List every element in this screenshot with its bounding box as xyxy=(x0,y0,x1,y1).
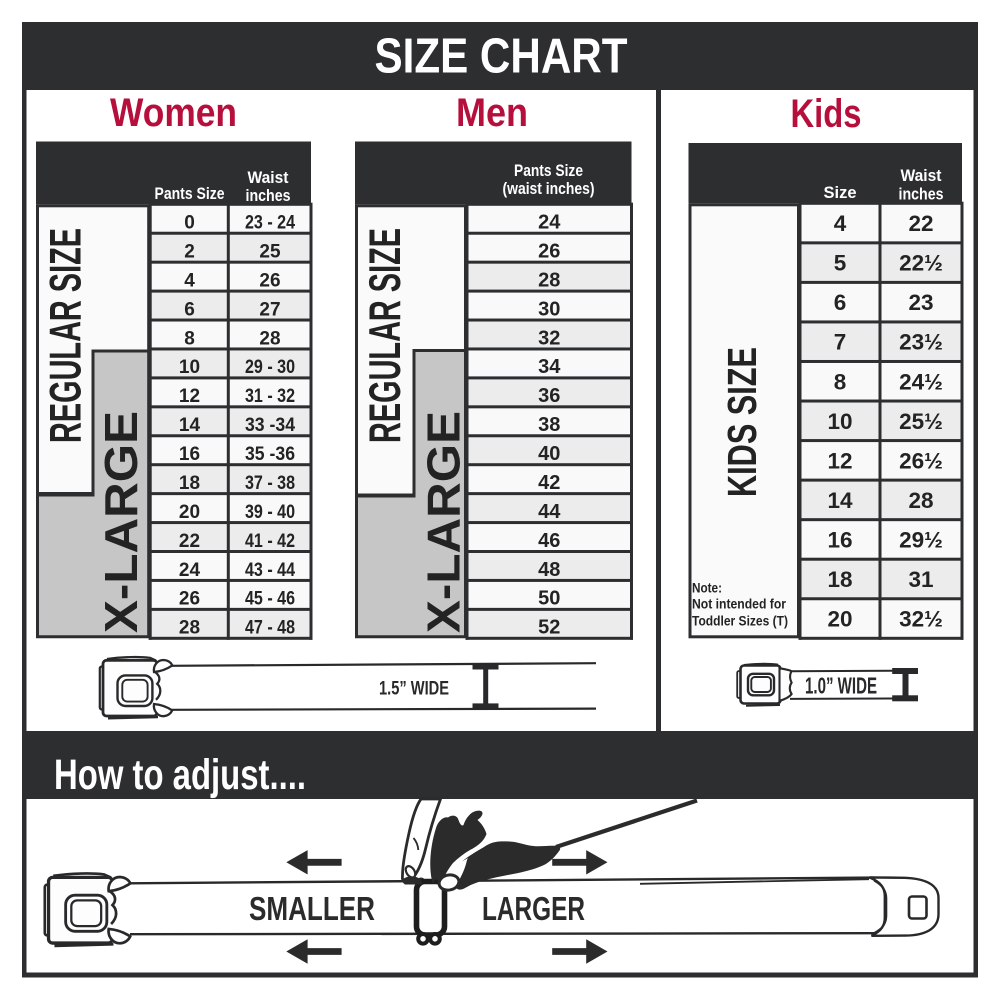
svg-text:18: 18 xyxy=(827,567,852,592)
svg-text:23: 23 xyxy=(908,290,933,315)
svg-text:6: 6 xyxy=(184,299,195,320)
svg-text:50: 50 xyxy=(538,588,560,610)
svg-text:29 - 30: 29 - 30 xyxy=(245,357,295,378)
svg-text:40: 40 xyxy=(538,443,560,465)
svg-text:23½: 23½ xyxy=(899,330,943,355)
svg-text:Women: Women xyxy=(110,91,237,135)
svg-text:48: 48 xyxy=(538,559,560,581)
svg-text:20: 20 xyxy=(827,607,852,632)
svg-text:24½: 24½ xyxy=(899,369,943,394)
svg-text:1.0” WIDE: 1.0” WIDE xyxy=(805,673,877,699)
svg-text:Toddler Sizes (T): Toddler Sizes (T) xyxy=(692,614,788,629)
svg-text:26½: 26½ xyxy=(899,448,943,473)
svg-text:26: 26 xyxy=(538,241,560,263)
svg-text:8: 8 xyxy=(184,328,195,349)
svg-text:52: 52 xyxy=(538,617,560,639)
svg-text:Note:: Note: xyxy=(692,581,722,596)
svg-text:4: 4 xyxy=(834,211,847,236)
svg-text:22: 22 xyxy=(179,531,200,552)
svg-text:12: 12 xyxy=(179,386,200,407)
svg-text:32: 32 xyxy=(538,327,560,349)
svg-text:28: 28 xyxy=(179,618,200,639)
svg-text:38: 38 xyxy=(538,414,560,436)
svg-text:28: 28 xyxy=(259,328,280,349)
svg-text:16: 16 xyxy=(179,444,200,465)
svg-text:KIDS SIZE: KIDS SIZE xyxy=(719,347,765,497)
svg-text:Kids: Kids xyxy=(791,92,862,136)
svg-text:(waist inches): (waist inches) xyxy=(503,180,595,198)
svg-text:39 - 40: 39 - 40 xyxy=(245,502,295,523)
svg-text:inches: inches xyxy=(899,186,944,204)
svg-text:27: 27 xyxy=(259,299,280,320)
svg-text:44: 44 xyxy=(538,501,561,523)
svg-text:37 - 38: 37 - 38 xyxy=(245,473,295,494)
svg-text:Waist: Waist xyxy=(248,169,289,187)
svg-text:inches: inches xyxy=(246,187,291,205)
svg-text:8: 8 xyxy=(834,369,847,394)
svg-text:14: 14 xyxy=(179,415,201,436)
svg-text:46: 46 xyxy=(538,530,560,552)
svg-text:Pants Size: Pants Size xyxy=(155,185,225,203)
svg-text:24: 24 xyxy=(538,212,561,234)
svg-text:0: 0 xyxy=(184,213,195,234)
svg-text:26: 26 xyxy=(259,270,280,291)
svg-text:Pants Size: Pants Size xyxy=(514,162,583,180)
svg-text:REGULAR SIZE: REGULAR SIZE xyxy=(42,228,91,443)
svg-text:SMALLER: SMALLER xyxy=(249,891,375,928)
svg-text:31: 31 xyxy=(908,567,933,592)
svg-text:43 - 44: 43 - 44 xyxy=(245,560,295,581)
svg-text:35 -36: 35 -36 xyxy=(245,444,295,465)
svg-text:28: 28 xyxy=(538,269,560,291)
svg-text:28: 28 xyxy=(908,488,933,513)
svg-text:5: 5 xyxy=(834,251,847,276)
svg-text:6: 6 xyxy=(834,290,847,315)
svg-text:Size: Size xyxy=(824,184,857,202)
svg-text:SIZE CHART: SIZE CHART xyxy=(375,29,628,84)
svg-text:42: 42 xyxy=(538,472,560,494)
svg-text:16: 16 xyxy=(827,527,852,552)
svg-text:26: 26 xyxy=(179,589,200,610)
svg-text:REGULAR SIZE: REGULAR SIZE xyxy=(361,228,410,443)
svg-text:22: 22 xyxy=(908,211,933,236)
svg-text:2: 2 xyxy=(184,242,195,263)
svg-text:34: 34 xyxy=(538,356,561,378)
svg-text:41 - 42: 41 - 42 xyxy=(245,531,295,552)
svg-text:32½: 32½ xyxy=(899,607,943,632)
svg-text:33 -34: 33 -34 xyxy=(245,415,295,436)
svg-text:36: 36 xyxy=(538,385,560,407)
svg-text:10: 10 xyxy=(179,357,200,378)
svg-text:1.5” WIDE: 1.5” WIDE xyxy=(379,679,449,700)
svg-text:12: 12 xyxy=(827,448,852,473)
svg-text:25: 25 xyxy=(259,242,281,263)
svg-text:47 - 48: 47 - 48 xyxy=(245,618,295,639)
svg-text:Waist: Waist xyxy=(901,167,942,185)
svg-text:14: 14 xyxy=(827,488,853,513)
svg-text:X-LARGE: X-LARGE xyxy=(418,411,470,633)
svg-text:Not intended for: Not intended for xyxy=(692,597,787,612)
svg-text:How to adjust....: How to adjust.... xyxy=(54,751,306,799)
svg-text:7: 7 xyxy=(834,330,847,355)
svg-text:X-LARGE: X-LARGE xyxy=(95,411,147,633)
svg-text:22½: 22½ xyxy=(899,251,943,276)
svg-text:24: 24 xyxy=(179,560,201,581)
svg-text:25½: 25½ xyxy=(899,409,943,434)
svg-text:10: 10 xyxy=(827,409,852,434)
svg-text:20: 20 xyxy=(179,502,200,523)
svg-text:29½: 29½ xyxy=(899,527,943,552)
svg-text:4: 4 xyxy=(184,270,195,291)
svg-text:45 - 46: 45 - 46 xyxy=(245,589,295,610)
svg-text:31 - 32: 31 - 32 xyxy=(245,386,295,407)
svg-text:LARGER: LARGER xyxy=(482,891,585,928)
svg-text:30: 30 xyxy=(538,298,560,320)
svg-text:Men: Men xyxy=(456,91,528,135)
svg-text:18: 18 xyxy=(179,473,200,494)
svg-text:23 - 24: 23 - 24 xyxy=(245,213,295,234)
